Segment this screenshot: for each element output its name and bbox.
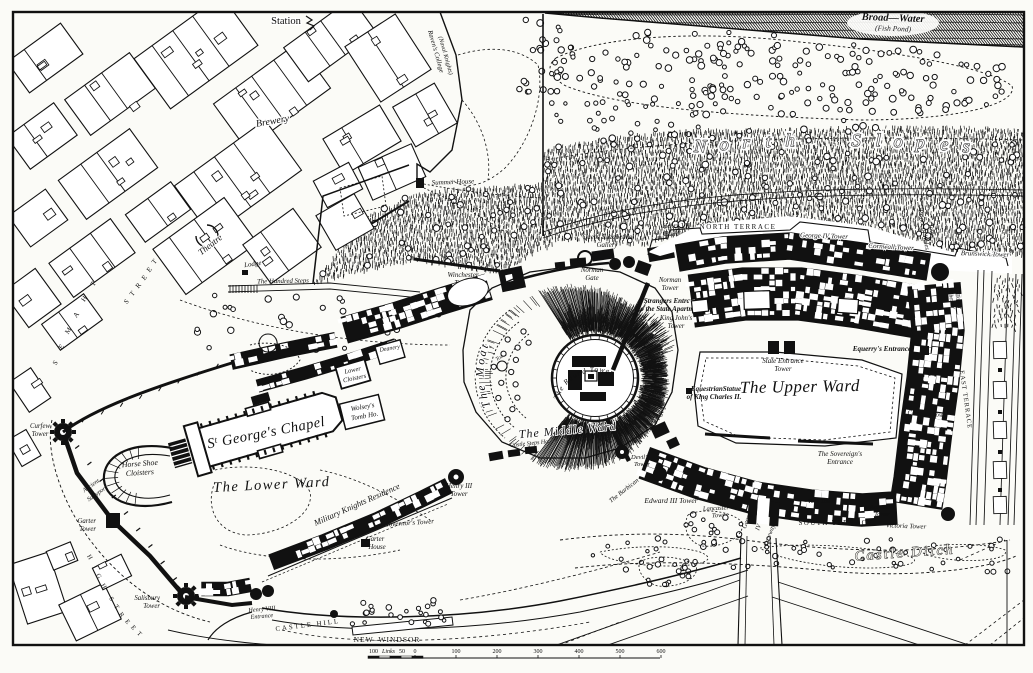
svg-text:500: 500 bbox=[616, 649, 625, 655]
svg-text:Gallery: Gallery bbox=[597, 242, 619, 249]
svg-text:Devil's: Devil's bbox=[630, 454, 649, 461]
svg-text:S: S bbox=[851, 130, 861, 150]
svg-text:Gate: Gate bbox=[585, 275, 598, 282]
svg-text:The Upper Ward: The Upper Ward bbox=[740, 376, 860, 397]
svg-text:EquestrianStatue: EquestrianStatue bbox=[690, 385, 741, 393]
svg-text:Tower: Tower bbox=[143, 603, 160, 610]
svg-text:400: 400 bbox=[575, 649, 584, 655]
svg-text:Curfew: Curfew bbox=[30, 423, 50, 430]
svg-text:SOUTH TERRACE: SOUTH TERRACE bbox=[799, 520, 874, 527]
svg-text:George IV Tower: George IV Tower bbox=[800, 231, 848, 241]
svg-text:p: p bbox=[913, 132, 925, 152]
svg-text:NEW–WINDSOR: NEW–WINDSOR bbox=[354, 635, 421, 644]
svg-text:Queen Elizabeth's: Queen Elizabeth's bbox=[582, 234, 632, 241]
svg-text:King John's: King John's bbox=[659, 315, 693, 322]
svg-text:Equerry's Entrance: Equerry's Entrance bbox=[852, 345, 912, 353]
svg-text:(Fish Pond): (Fish Pond) bbox=[875, 23, 912, 33]
svg-text:0: 0 bbox=[414, 649, 417, 655]
svg-text:York Tower: York Tower bbox=[808, 498, 837, 505]
svg-text:300: 300 bbox=[534, 649, 543, 655]
svg-text:e: e bbox=[940, 134, 949, 154]
svg-text:o: o bbox=[893, 131, 903, 151]
svg-text:State Entrance: State Entrance bbox=[762, 357, 803, 365]
svg-text:100: 100 bbox=[452, 649, 461, 655]
svg-text:Norman: Norman bbox=[658, 277, 682, 284]
svg-text:Tower: Tower bbox=[874, 511, 890, 518]
svg-text:l: l bbox=[875, 130, 881, 150]
svg-text:100: 100 bbox=[369, 649, 378, 655]
svg-text:NORTH TERRACE: NORTH TERRACE bbox=[700, 223, 777, 231]
svg-text:Tower: Tower bbox=[32, 431, 49, 438]
svg-text:Summer House: Summer House bbox=[432, 177, 475, 186]
svg-text:of King Charles II.: of King Charles II. bbox=[687, 393, 742, 401]
svg-text:The Sovereign's: The Sovereign's bbox=[818, 450, 862, 458]
svg-text:600: 600 bbox=[657, 649, 666, 655]
svg-text:The Hundred Steps: The Hundred Steps bbox=[257, 278, 309, 286]
svg-text:Edward III Tower: Edward III Tower bbox=[643, 496, 697, 505]
svg-text:Garter: Garter bbox=[366, 536, 385, 543]
svg-text:s: s bbox=[962, 136, 970, 156]
svg-text:200: 200 bbox=[493, 649, 502, 655]
svg-text:Norman: Norman bbox=[580, 267, 604, 274]
svg-text:Tower: Tower bbox=[668, 323, 685, 330]
svg-text:Augusta: Augusta bbox=[869, 504, 891, 511]
svg-text:Links: Links bbox=[381, 649, 396, 655]
svg-text:Station: Station bbox=[271, 16, 302, 27]
svg-text:Tower: Tower bbox=[79, 526, 96, 533]
svg-text:Entrance: Entrance bbox=[826, 458, 853, 466]
svg-text:N: N bbox=[693, 136, 708, 156]
svg-text:House: House bbox=[367, 544, 385, 551]
svg-text:Tower: Tower bbox=[450, 490, 468, 498]
svg-text:h: h bbox=[785, 130, 795, 150]
svg-text:Henry III: Henry III bbox=[445, 482, 473, 490]
svg-text:Garter: Garter bbox=[77, 518, 96, 525]
svg-text:o: o bbox=[719, 134, 729, 154]
svg-text:Brunswick.Tower: Brunswick.Tower bbox=[961, 249, 1010, 259]
svg-text:Tower: Tower bbox=[662, 285, 679, 292]
svg-text:Tower: Tower bbox=[774, 365, 792, 373]
svg-text:Tower: Tower bbox=[634, 461, 650, 468]
svg-text:50: 50 bbox=[399, 649, 405, 655]
